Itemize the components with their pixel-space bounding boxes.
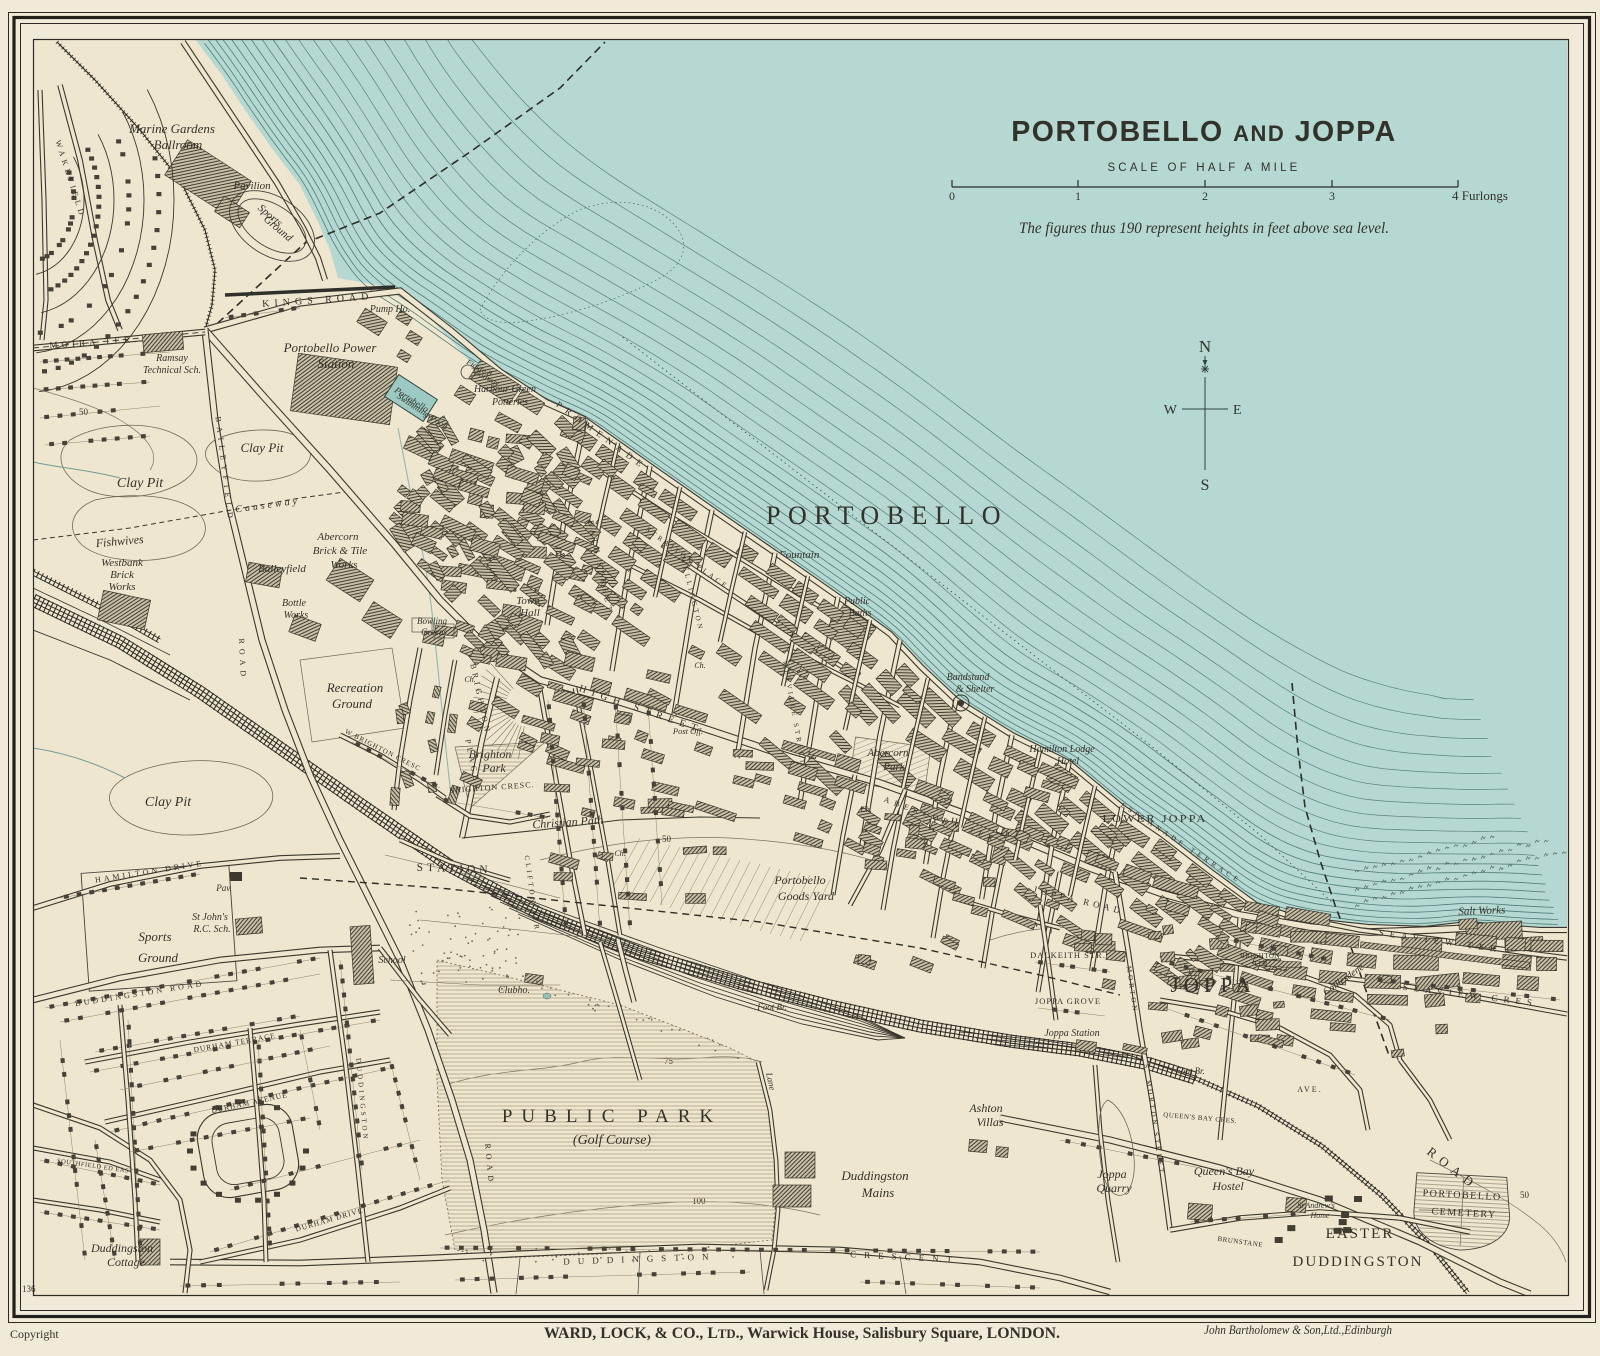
svg-text:Works: Works <box>330 559 357 571</box>
svg-text:Marine Gardens: Marine Gardens <box>128 121 215 136</box>
svg-text:Home: Home <box>1309 1211 1330 1220</box>
svg-text:JOPPA: JOPPA <box>1171 973 1256 997</box>
svg-text:136: 136 <box>22 1284 36 1294</box>
svg-text:Foot Br.: Foot Br. <box>756 1002 787 1012</box>
svg-text:Queen's Bay: Queen's Bay <box>1194 1164 1255 1178</box>
svg-text:Duddingston: Duddingston <box>90 1241 153 1255</box>
svg-text:Station: Station <box>318 356 355 371</box>
svg-text:Works: Works <box>108 581 135 593</box>
svg-text:Brick & Tile: Brick & Tile <box>313 545 368 557</box>
svg-text:Potteries: Potteries <box>491 397 528 408</box>
svg-text:Bandstand: Bandstand <box>947 672 991 683</box>
svg-text:Public: Public <box>843 596 871 607</box>
svg-text:Abercorn: Abercorn <box>316 531 359 543</box>
svg-text:Hall: Hall <box>519 607 540 619</box>
svg-text:1: 1 <box>1075 189 1081 203</box>
svg-text:R.C. Sch.: R.C. Sch. <box>192 924 230 935</box>
svg-text:S: S <box>1201 477 1210 494</box>
svg-text:PORTOBELLO AND JOPPA: PORTOBELLO AND JOPPA <box>1011 116 1396 148</box>
svg-text:Salt Works: Salt Works <box>1458 904 1505 918</box>
svg-text:Ashton: Ashton <box>968 1101 1002 1115</box>
svg-text:St Andrew's: St Andrew's <box>1297 1201 1335 1210</box>
svg-text:Technical Sch.: Technical Sch. <box>143 365 201 376</box>
svg-text:Baileyfield: Baileyfield <box>258 563 306 575</box>
svg-text:Abercorn: Abercorn <box>866 747 909 759</box>
svg-text:St John's: St John's <box>192 912 228 923</box>
svg-text:Hostel: Hostel <box>1211 1179 1244 1193</box>
svg-text:TER.: TER. <box>1254 960 1271 968</box>
svg-text:Quarry: Quarry <box>1096 1181 1132 1195</box>
svg-text:Bottle: Bottle <box>282 598 306 609</box>
svg-text:Ch.: Ch. <box>614 849 625 858</box>
svg-text:4 Furlongs: 4 Furlongs <box>1452 188 1508 203</box>
svg-text:Villas: Villas <box>976 1115 1003 1129</box>
svg-text:Joppa: Joppa <box>1097 1167 1126 1181</box>
svg-text:Hamilton Lodge: Hamilton Lodge <box>1028 744 1095 755</box>
svg-text:Hotel: Hotel <box>1056 756 1079 767</box>
svg-text:Ramsay: Ramsay <box>155 353 188 364</box>
svg-text:Foot Br.: Foot Br. <box>1174 1066 1205 1076</box>
svg-text:Pump Ho.: Pump Ho. <box>369 304 411 315</box>
svg-text:Park: Park <box>882 761 906 773</box>
svg-text:Mains: Mains <box>861 1185 895 1200</box>
svg-text:BRIGHTON: BRIGHTON <box>1240 952 1280 960</box>
svg-text:Post Off.: Post Off. <box>672 726 703 736</box>
svg-text:Works: Works <box>284 610 309 621</box>
svg-text:50: 50 <box>1520 1190 1530 1200</box>
svg-text:School: School <box>378 955 405 966</box>
svg-text:Ground: Ground <box>332 696 372 711</box>
svg-text:Cottage: Cottage <box>107 1255 146 1269</box>
svg-text:0: 0 <box>949 189 955 203</box>
svg-text:The figures thus 190 represent: The figures thus 190 represent heights i… <box>1019 220 1389 237</box>
svg-text:SCALE OF HALF A MILE: SCALE OF HALF A MILE <box>1107 162 1300 174</box>
svg-text:3: 3 <box>1329 189 1335 203</box>
svg-text:Park: Park <box>481 761 506 775</box>
svg-text:Ballroom: Ballroom <box>154 137 203 152</box>
svg-text:Westbank: Westbank <box>101 557 144 569</box>
svg-text:Sports: Sports <box>138 929 171 944</box>
svg-text:DALKEITH STR.: DALKEITH STR. <box>1030 950 1106 960</box>
svg-text:Recreation: Recreation <box>326 680 384 695</box>
svg-text:Portobello: Portobello <box>773 873 825 887</box>
svg-text:E: E <box>1233 403 1242 418</box>
svg-text:& Shelter: & Shelter <box>956 684 995 695</box>
svg-text:Greens: Greens <box>421 627 447 637</box>
svg-text:Ch.: Ch. <box>1000 829 1011 838</box>
svg-text:Brick: Brick <box>110 569 135 581</box>
svg-text:Ch.: Ch. <box>694 661 705 670</box>
svg-text:Copyright: Copyright <box>10 1327 59 1341</box>
svg-text:Clay Pit: Clay Pit <box>241 440 284 455</box>
svg-text:PORTOBELLO: PORTOBELLO <box>766 501 1008 530</box>
svg-text:(Golf Course): (Golf Course) <box>573 1133 652 1148</box>
svg-text:John Bartholomew & Son,Ltd.,Ed: John Bartholomew & Son,Ltd.,Edinburgh <box>1204 1323 1392 1337</box>
svg-text:Town: Town <box>516 595 540 607</box>
svg-text:Ground: Ground <box>138 950 178 965</box>
svg-text:50: 50 <box>79 407 89 417</box>
svg-text:2: 2 <box>1202 189 1208 203</box>
svg-text:Bowling: Bowling <box>417 616 448 626</box>
svg-text:AVE.: AVE. <box>1297 1085 1322 1094</box>
svg-text:Clay Pit: Clay Pit <box>117 476 164 491</box>
svg-text:Ch.: Ch. <box>464 675 475 684</box>
svg-text:PUBLIC PARK: PUBLIC PARK <box>502 1106 722 1127</box>
svg-text:Joppa Station: Joppa Station <box>1044 1028 1099 1039</box>
svg-text:50: 50 <box>662 834 672 844</box>
svg-text:Pavilion: Pavilion <box>232 180 271 192</box>
svg-text:Clubho.: Clubho. <box>498 985 530 996</box>
svg-text:JOPPA GROVE: JOPPA GROVE <box>1035 996 1101 1006</box>
svg-text:Harbour Green: Harbour Green <box>473 384 536 395</box>
svg-text:Clay Pit: Clay Pit <box>145 795 192 810</box>
svg-text:W: W <box>1164 403 1178 418</box>
svg-text:DUDDINGSTON: DUDDINGSTON <box>1293 1254 1424 1270</box>
svg-text:Duddingston: Duddingston <box>840 1168 908 1183</box>
svg-text:Pav.: Pav. <box>215 883 232 893</box>
svg-text:Brighton: Brighton <box>469 747 512 761</box>
svg-text:EASTER: EASTER <box>1326 1226 1395 1242</box>
svg-text:N: N <box>1199 337 1211 356</box>
svg-text:Ch.: Ch. <box>860 805 871 814</box>
svg-text:Baths: Baths <box>849 608 872 619</box>
svg-text:Portobello Power: Portobello Power <box>283 340 378 355</box>
svg-text:WARD, LOCK, & CO., LTD., Warwi: WARD, LOCK, & CO., LTD., Warwick House, … <box>544 1325 1060 1342</box>
svg-text:Goods Yard: Goods Yard <box>778 889 835 903</box>
